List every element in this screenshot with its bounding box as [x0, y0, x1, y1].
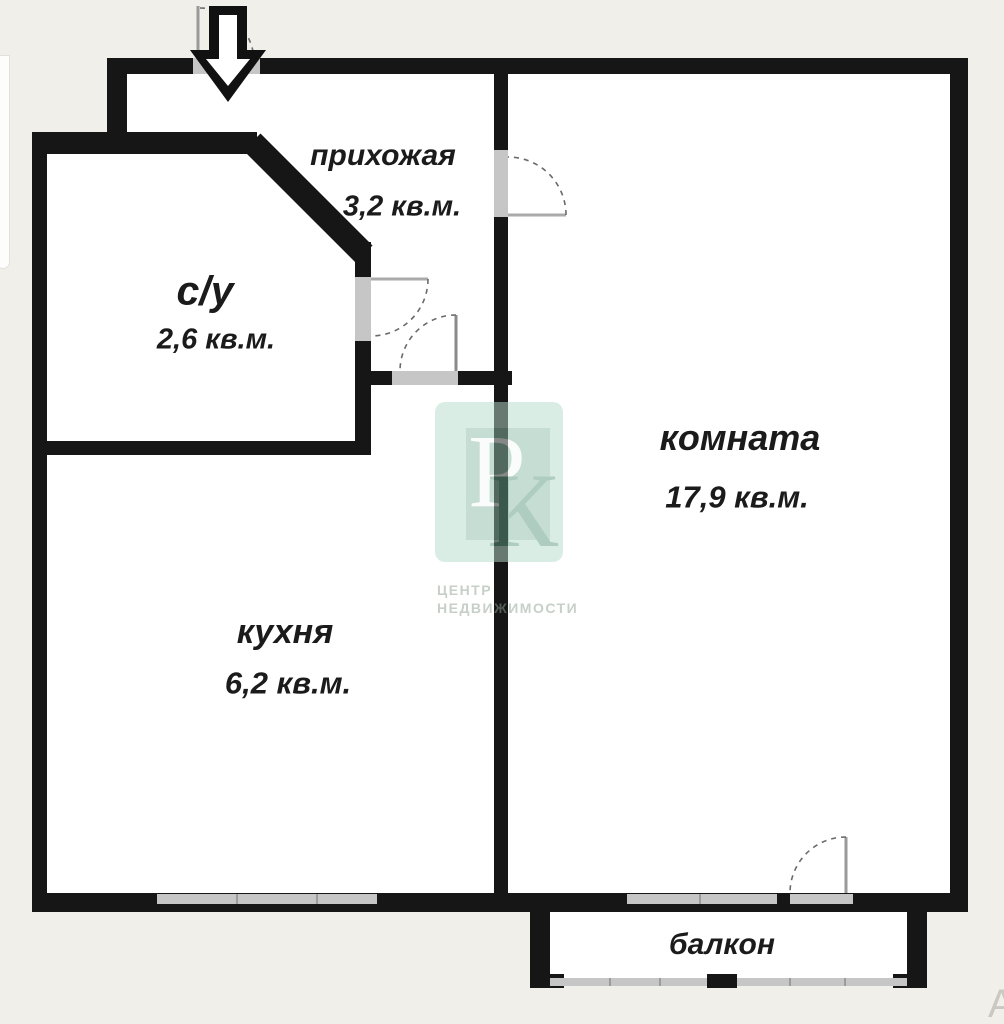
balcony-window [627, 894, 853, 904]
wall-left [32, 132, 47, 912]
balcony-railing-post [707, 974, 737, 988]
room-area-hallway: 3,2 кв.м. [343, 193, 461, 222]
kitchen-door-opening [392, 371, 458, 385]
room-door-swing [508, 157, 566, 215]
kitchen-window [157, 894, 377, 904]
room-label-kitchen: кухня [237, 615, 333, 649]
room-area-kitchen: 6,2 кв.м. [225, 668, 351, 699]
wall-middle-upper [494, 74, 508, 150]
wall-middle-lower [494, 217, 508, 893]
balcony-window-divider [777, 893, 790, 905]
wall-bathroom-right-lower [355, 341, 371, 455]
entrance-arrow-icon [190, 6, 266, 102]
room-label-room: комната [660, 420, 821, 456]
wall-bathroom-bottom [32, 441, 371, 455]
room-label-bathroom: с/у [177, 271, 234, 312]
bathroom-door-opening [355, 277, 371, 341]
left-edge-strip [0, 55, 10, 269]
room-area-bathroom: 2,6 кв.м. [157, 326, 275, 355]
balcony-door-swing [790, 837, 846, 893]
room-door-opening [494, 150, 508, 217]
wall-right [950, 58, 968, 912]
wall-hall-kitchen-left [355, 371, 392, 385]
wall-bathroom-top [32, 132, 257, 154]
corner-letter: А [988, 982, 1004, 1024]
plan-drawing [0, 0, 1004, 1024]
room-label-hallway: прихожая [310, 141, 456, 171]
bathroom-door-swing [371, 279, 428, 336]
floor-plan: прихожая 3,2 кв.м. с/у 2,6 кв.м. комната… [0, 0, 1004, 1024]
room-label-balcony: балкон [669, 930, 775, 960]
room-area-room: 17,9 кв.м. [665, 482, 809, 513]
kitchen-door-swing [400, 315, 456, 371]
wall-bathroom-right-upper [355, 242, 371, 277]
